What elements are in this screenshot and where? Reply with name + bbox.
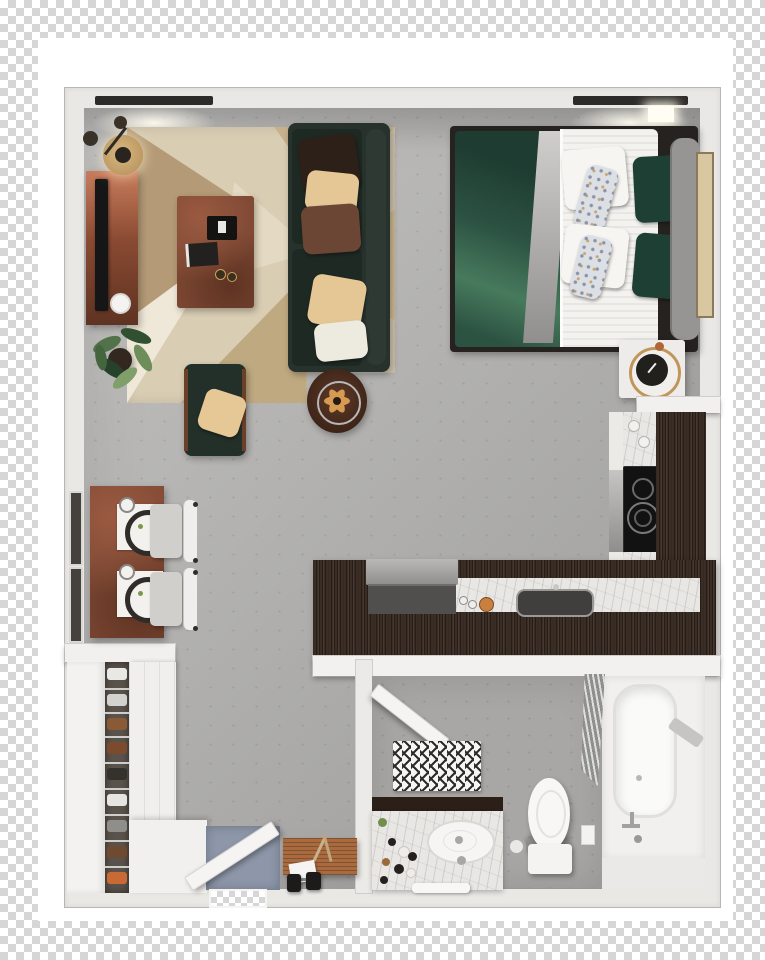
floor-lamp-head xyxy=(115,147,131,163)
toiletry xyxy=(388,838,396,846)
toilet-seat xyxy=(536,790,566,838)
doorway-opening xyxy=(211,891,265,906)
candle xyxy=(227,272,237,282)
tray-item xyxy=(218,221,226,233)
cup xyxy=(119,497,135,513)
candle xyxy=(215,269,226,280)
shoe xyxy=(107,694,127,706)
shelf-line xyxy=(105,736,129,738)
toiletry xyxy=(378,818,387,827)
spice-jar xyxy=(459,596,468,605)
tub-drain xyxy=(636,775,642,781)
decor-center xyxy=(333,397,341,405)
wall-dispenser xyxy=(581,825,595,845)
kitchen-sink xyxy=(516,589,594,617)
wall-art xyxy=(696,152,714,318)
dumbbell xyxy=(306,872,321,890)
cup xyxy=(119,564,135,580)
shoe xyxy=(107,768,127,780)
bath-mat xyxy=(393,741,481,791)
dining-chair-back xyxy=(183,500,197,562)
sofa-backrest xyxy=(366,129,386,365)
dumbbell xyxy=(287,874,301,892)
chair-foot xyxy=(193,626,198,631)
bowl xyxy=(479,597,494,612)
coffee-cup xyxy=(110,293,131,314)
shoe xyxy=(107,846,127,858)
toilet-tank xyxy=(528,844,572,874)
armchair-wood-arm xyxy=(184,369,188,451)
vanity-faucet xyxy=(457,856,466,865)
floor-lamp-joint xyxy=(83,131,98,146)
ceiling-light-panel xyxy=(648,106,674,122)
garnish xyxy=(138,524,143,529)
dining-chair-seat xyxy=(150,572,182,626)
shoe xyxy=(107,872,127,884)
book xyxy=(185,242,219,267)
toiletry xyxy=(408,852,417,861)
kitchen-partition-wall xyxy=(637,397,720,413)
cooktop-burner xyxy=(632,478,654,500)
shoe xyxy=(107,718,127,730)
countertop-appliance-front xyxy=(368,584,456,614)
television xyxy=(95,179,108,311)
shoe xyxy=(107,742,127,754)
shelf-line xyxy=(105,688,129,690)
shelf-line xyxy=(105,866,129,868)
bottle xyxy=(638,436,650,448)
vanity-faucet xyxy=(455,836,463,844)
shoe xyxy=(107,794,127,806)
window xyxy=(573,96,688,105)
shoe xyxy=(107,668,127,680)
chair-foot xyxy=(193,570,198,575)
throw-pillow-rust xyxy=(300,203,361,255)
dining-chair-back xyxy=(183,568,197,630)
chair-foot xyxy=(193,502,198,507)
toiletry xyxy=(394,864,404,874)
oven xyxy=(609,470,623,552)
bottle xyxy=(628,420,640,432)
copper-cup xyxy=(655,342,664,351)
vanity-backsplash xyxy=(372,797,503,811)
bathtub xyxy=(613,684,677,818)
spice-jar xyxy=(468,600,477,609)
tub-faucet-handle xyxy=(622,824,640,828)
window xyxy=(69,567,83,643)
toiletry xyxy=(380,876,388,884)
bathroom-lower-wall xyxy=(602,858,705,889)
closet-door xyxy=(67,662,106,893)
entry-partition-wall xyxy=(65,644,175,662)
shelf-line xyxy=(105,712,129,714)
window xyxy=(69,491,83,566)
throw-pillow-white xyxy=(313,319,369,362)
toiletry xyxy=(382,858,390,866)
shelf-line xyxy=(105,840,129,842)
window xyxy=(95,96,213,105)
cooktop-burner-inner xyxy=(634,509,652,527)
kitchen-bath-wall xyxy=(313,656,720,676)
shelf-line xyxy=(105,814,129,816)
hand-towel xyxy=(412,883,470,893)
dining-chair-seat xyxy=(150,504,182,558)
wardrobe xyxy=(129,662,176,820)
shelf-line xyxy=(105,788,129,790)
garnish xyxy=(138,591,143,596)
toilet-paper-holder xyxy=(507,837,526,856)
clock-face xyxy=(636,354,668,386)
shoe xyxy=(107,820,127,832)
chair-foot xyxy=(193,558,198,563)
countertop-appliance xyxy=(366,559,458,585)
toiletry xyxy=(406,868,416,878)
faucet xyxy=(553,584,559,590)
transparent-checkerboard-background xyxy=(0,0,765,960)
tub-faucet-knob xyxy=(634,835,642,843)
shelf-line xyxy=(105,762,129,764)
